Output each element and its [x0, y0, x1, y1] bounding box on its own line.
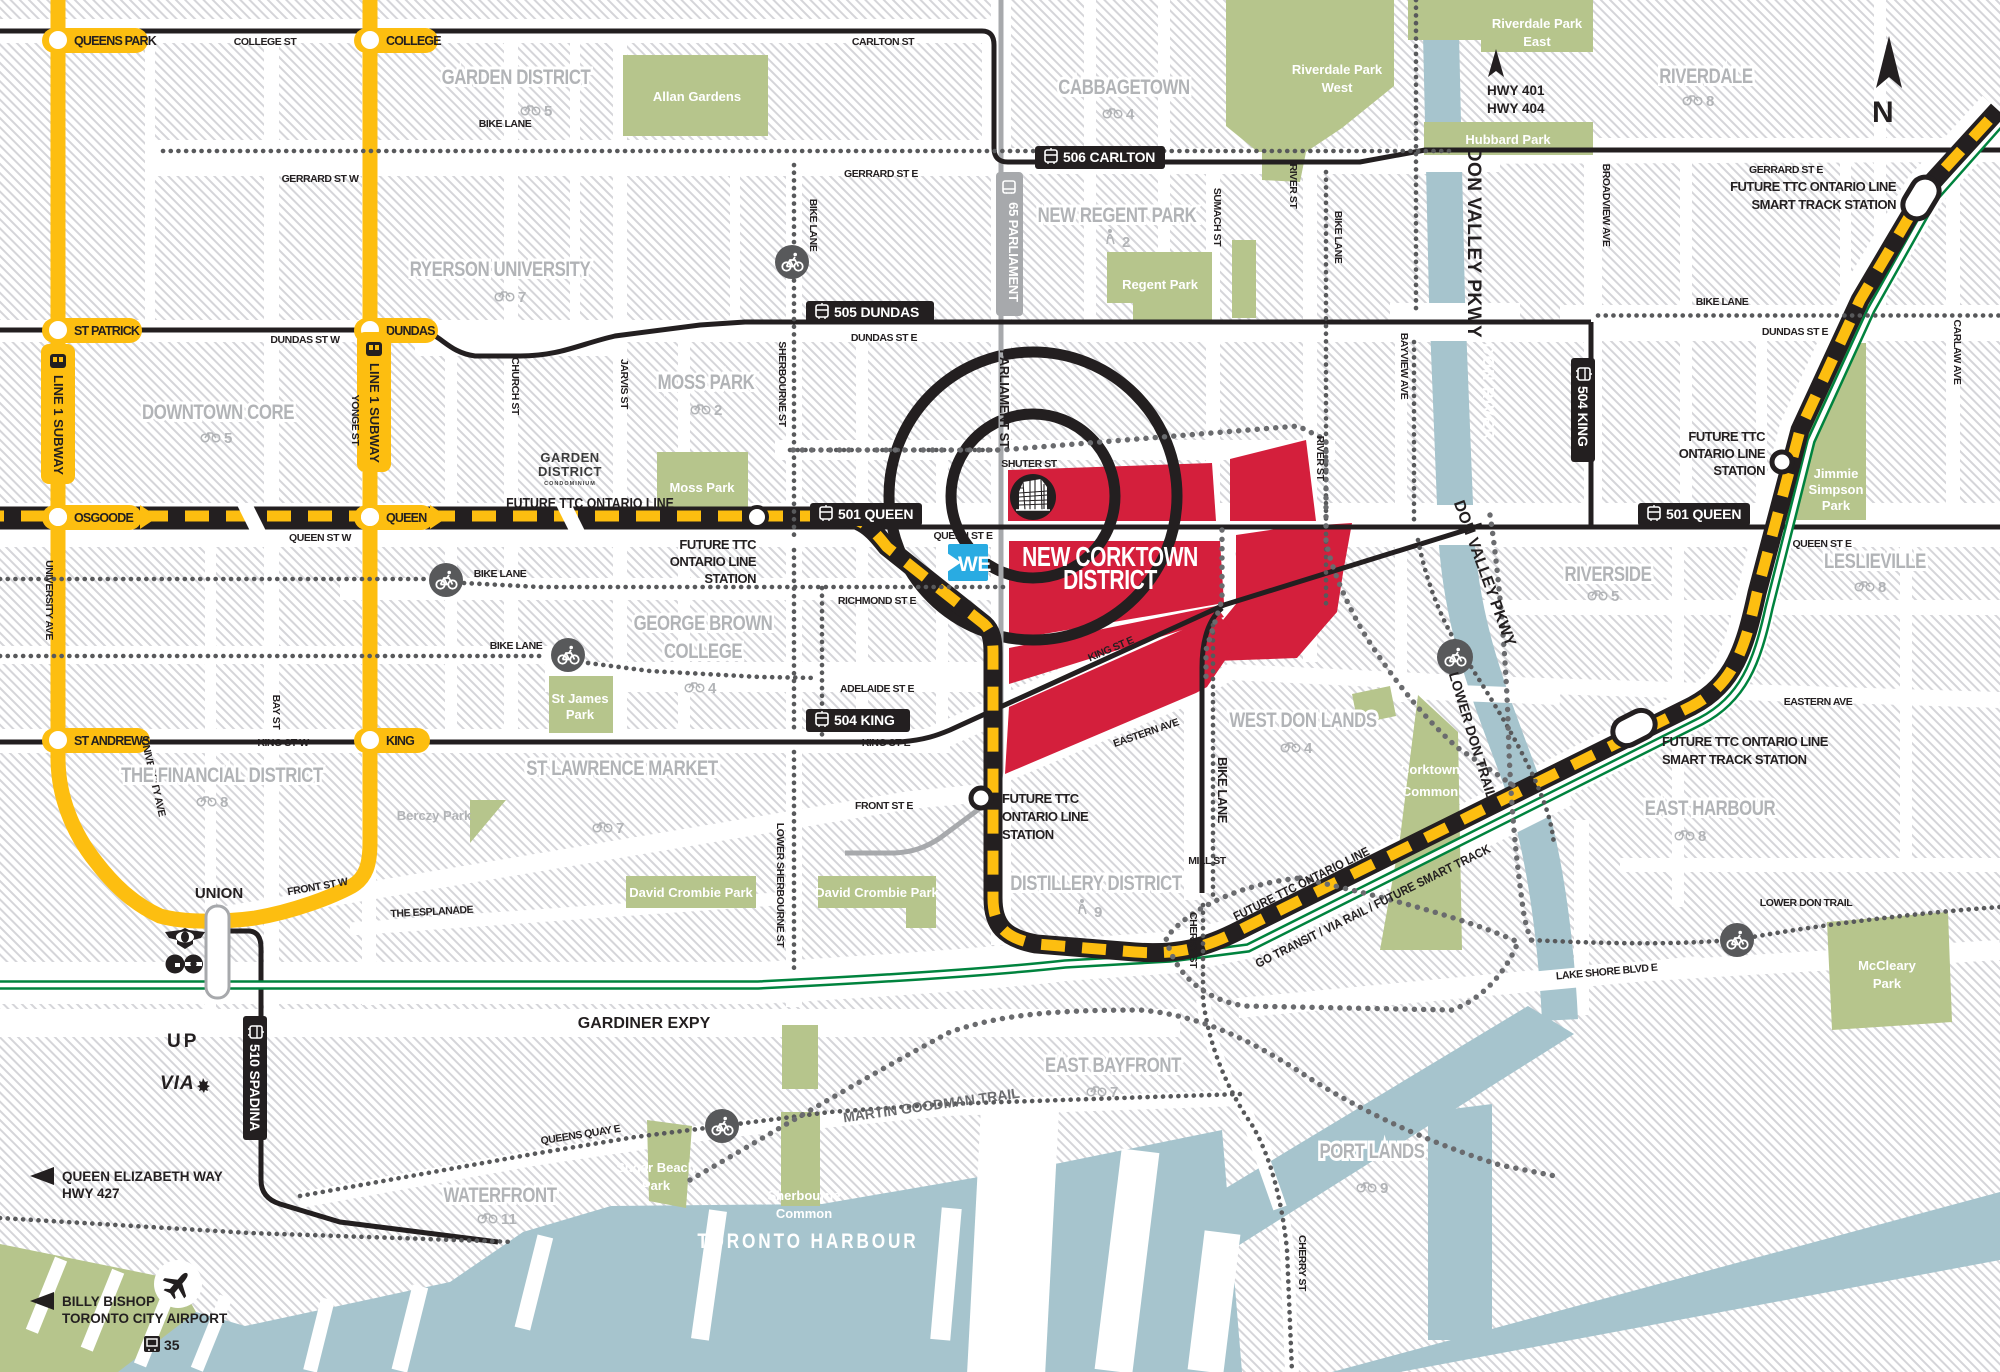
svg-text:CABBAGETOWN: CABBAGETOWN: [1058, 76, 1189, 99]
svg-text:2: 2: [1122, 234, 1130, 251]
svg-text:ONTARIO LINE: ONTARIO LINE: [1679, 446, 1766, 461]
svg-text:8: 8: [1706, 93, 1714, 110]
svg-text:LINE 1 SUBWAY: LINE 1 SUBWAY: [367, 363, 382, 463]
svg-text:LESLIEVILLE: LESLIEVILLE: [1824, 550, 1926, 573]
svg-text:RYERSON UNIVERSITY: RYERSON UNIVERSITY: [410, 258, 591, 281]
svg-text:GEORGE BROWN: GEORGE BROWN: [634, 612, 773, 635]
svg-text:Riverdale Park: Riverdale Park: [1292, 62, 1383, 77]
svg-text:YONGE ST: YONGE ST: [349, 395, 361, 447]
svg-text:RIVERSIDE: RIVERSIDE: [1565, 563, 1652, 586]
svg-text:GERRARD ST W: GERRARD ST W: [282, 173, 359, 185]
svg-text:SMART TRACK STATION: SMART TRACK STATION: [1662, 752, 1807, 767]
svg-text:2: 2: [714, 402, 722, 419]
svg-text:QUEEN ELIZABETH WAY: QUEEN ELIZABETH WAY: [62, 1169, 223, 1184]
svg-text:GARDINER EXPY: GARDINER EXPY: [578, 1015, 711, 1032]
svg-text:HWY 401: HWY 401: [1487, 83, 1545, 98]
svg-text:COLLEGE: COLLEGE: [664, 640, 742, 663]
svg-text:UNION: UNION: [195, 885, 243, 902]
svg-text:SHUTER ST: SHUTER ST: [1001, 458, 1057, 470]
svg-text:QUEEN ST E: QUEEN ST E: [933, 530, 993, 542]
svg-text:COLLEGE ST: COLLEGE ST: [234, 36, 298, 48]
svg-text:LOWER SHERBOURNE ST: LOWER SHERBOURNE ST: [774, 823, 786, 948]
svg-text:EAST HARBOUR: EAST HARBOUR: [1645, 797, 1776, 820]
svg-text:LOWER DON TRAIL: LOWER DON TRAIL: [1760, 897, 1853, 909]
svg-text:504 KING: 504 KING: [1575, 386, 1591, 447]
svg-text:GERRARD ST E: GERRARD ST E: [1749, 164, 1823, 176]
svg-text:ST PATRICK: ST PATRICK: [74, 324, 140, 338]
svg-text:BAYVIEW AVE: BAYVIEW AVE: [1398, 333, 1410, 400]
svg-text:RIVER ST: RIVER ST: [1287, 164, 1299, 210]
svg-text:SHERBOURNE ST: SHERBOURNE ST: [776, 341, 788, 427]
svg-text:QUEENS PARK: QUEENS PARK: [74, 34, 157, 48]
svg-text:BIKE LANE: BIKE LANE: [807, 199, 819, 252]
svg-text:TORONTO HARBOUR: TORONTO HARBOUR: [697, 1231, 918, 1254]
svg-text:QUEEN ST W: QUEEN ST W: [289, 532, 352, 544]
svg-text:TORONTO CITY AIRPORT: TORONTO CITY AIRPORT: [62, 1311, 228, 1326]
svg-text:504 KING: 504 KING: [834, 712, 895, 728]
svg-text:CHURCH ST: CHURCH ST: [509, 357, 521, 416]
svg-text:Park: Park: [642, 1178, 671, 1193]
svg-text:Berczy Park: Berczy Park: [397, 808, 472, 823]
svg-text:7: 7: [616, 820, 624, 837]
svg-text:4: 4: [708, 680, 717, 697]
svg-text:Jimmie: Jimmie: [1814, 466, 1859, 481]
svg-text:HWY 404: HWY 404: [1487, 101, 1545, 116]
svg-text:ADELAIDE ST E: ADELAIDE ST E: [840, 683, 915, 695]
svg-text:KING ST E: KING ST E: [862, 737, 911, 749]
svg-text:QUEEN ST E: QUEEN ST E: [1792, 538, 1852, 550]
svg-text:CHERRY ST: CHERRY ST: [1296, 1235, 1308, 1292]
svg-text:BIKE LANE: BIKE LANE: [490, 640, 543, 652]
svg-text:RIVERDALE: RIVERDALE: [1659, 65, 1752, 88]
svg-text:4: 4: [1304, 740, 1313, 757]
svg-text:8: 8: [1878, 579, 1886, 596]
svg-text:PORT LANDS: PORT LANDS: [1319, 1140, 1424, 1163]
svg-text:BIKE LANE: BIKE LANE: [1696, 296, 1749, 308]
svg-text:JARVIS ST: JARVIS ST: [618, 359, 630, 410]
svg-text:STATION: STATION: [1002, 827, 1054, 842]
svg-text:35: 35: [164, 1337, 180, 1353]
svg-text:9: 9: [1380, 1180, 1388, 1197]
svg-text:505 DUNDAS: 505 DUNDAS: [834, 304, 919, 320]
svg-text:DOWNTOWN CORE: DOWNTOWN CORE: [142, 401, 294, 424]
svg-text:Hubbard Park: Hubbard Park: [1465, 132, 1551, 147]
svg-text:65 PARLIAMENT: 65 PARLIAMENT: [1006, 202, 1021, 302]
svg-text:HWY 427: HWY 427: [62, 1186, 120, 1201]
svg-text:5: 5: [544, 103, 552, 120]
svg-text:FRONT ST E: FRONT ST E: [855, 800, 913, 812]
svg-text:MOSS PARK: MOSS PARK: [658, 371, 755, 394]
svg-text:DUNDAS ST E: DUNDAS ST E: [1762, 326, 1829, 338]
svg-text:MILL ST: MILL ST: [1188, 855, 1227, 867]
svg-text:SMART TRACK STATION: SMART TRACK STATION: [1751, 197, 1896, 212]
svg-text:CONDOMINIUM: CONDOMINIUM: [544, 481, 596, 487]
svg-text:DON RIVER: DON RIVER: [1479, 343, 1496, 441]
svg-text:ST LAWRENCE MARKET: ST LAWRENCE MARKET: [526, 757, 718, 780]
svg-text:ONTARIO LINE: ONTARIO LINE: [670, 554, 757, 569]
svg-text:5: 5: [1611, 588, 1619, 605]
svg-text:DISTRICT: DISTRICT: [1063, 565, 1157, 596]
svg-text:FUTURE TTC: FUTURE TTC: [1688, 429, 1766, 444]
svg-text:Regent Park: Regent Park: [1122, 277, 1199, 292]
svg-text:FUTURE TTC ONTARIO LINE: FUTURE TTC ONTARIO LINE: [1662, 734, 1829, 749]
svg-text:ONTARIO LINE: ONTARIO LINE: [1002, 809, 1089, 824]
svg-text:7: 7: [1110, 1084, 1118, 1101]
svg-text:McCleary: McCleary: [1858, 958, 1917, 973]
svg-text:CARLTON ST: CARLTON ST: [852, 36, 915, 48]
svg-text:Riverdale Park: Riverdale Park: [1492, 16, 1583, 31]
svg-text:FUTURE TTC ONTARIO LINE: FUTURE TTC ONTARIO LINE: [1730, 179, 1897, 194]
svg-text:5: 5: [224, 430, 232, 447]
svg-text:DISTILLERY DISTRICT: DISTILLERY DISTRICT: [1010, 872, 1182, 895]
svg-text:DON VALLEY PKWY: DON VALLEY PKWY: [1463, 148, 1484, 338]
svg-text:Allan Gardens: Allan Gardens: [653, 89, 741, 104]
svg-text:David Crombie Park: David Crombie Park: [629, 885, 753, 900]
svg-text:NEW REGENT PARK: NEW REGENT PARK: [1038, 204, 1197, 227]
svg-text:Common: Common: [776, 1206, 832, 1221]
svg-text:Corktown: Corktown: [1400, 762, 1460, 777]
svg-text:501 QUEEN: 501 QUEEN: [1666, 506, 1741, 522]
svg-text:GERRARD ST E: GERRARD ST E: [844, 168, 918, 180]
svg-text:BILLY BISHOP: BILLY BISHOP: [62, 1294, 155, 1309]
svg-text:BROADVIEW AVE: BROADVIEW AVE: [1600, 164, 1612, 247]
svg-text:St James: St James: [551, 691, 608, 706]
svg-text:LINE 1 SUBWAY: LINE 1 SUBWAY: [51, 375, 66, 475]
svg-text:DUNDAS ST E: DUNDAS ST E: [851, 332, 918, 344]
svg-text:FUTURE TTC ONTARIO LINE: FUTURE TTC ONTARIO LINE: [506, 495, 674, 511]
svg-text:EAST BAYFRONT: EAST BAYFRONT: [1045, 1054, 1182, 1077]
svg-text:West: West: [1322, 80, 1353, 95]
svg-text:Sherbourne: Sherbourne: [768, 1188, 841, 1203]
svg-text:PARLIAMENT ST: PARLIAMENT ST: [997, 350, 1012, 449]
svg-text:Simpson: Simpson: [1809, 482, 1864, 497]
svg-text:BIKE LANE: BIKE LANE: [474, 568, 527, 580]
svg-text:WEST DON LANDS: WEST DON LANDS: [1229, 709, 1376, 732]
svg-text:BIKE LANE: BIKE LANE: [479, 118, 532, 130]
svg-text:THE FINANCIAL DISTRICT: THE FINANCIAL DISTRICT: [121, 764, 323, 787]
svg-text:Sugar Beach: Sugar Beach: [616, 1160, 696, 1175]
svg-text:510 SPADINA: 510 SPADINA: [247, 1044, 263, 1131]
svg-text:11: 11: [501, 1211, 517, 1228]
svg-text:RICHMOND ST E: RICHMOND ST E: [838, 595, 917, 607]
svg-text:DUNDAS ST W: DUNDAS ST W: [270, 334, 340, 346]
svg-text:QUEEN: QUEEN: [386, 511, 427, 525]
svg-text:KING: KING: [386, 734, 414, 748]
svg-text:SUMACH ST: SUMACH ST: [1211, 188, 1223, 247]
svg-text:BAY ST: BAY ST: [270, 695, 282, 731]
svg-text:David Crombie Park: David Crombie Park: [815, 885, 939, 900]
svg-text:FUTURE TTC: FUTURE TTC: [679, 537, 757, 552]
svg-text:DISTRICT: DISTRICT: [538, 464, 602, 479]
svg-text:Park: Park: [566, 707, 595, 722]
svg-text:WE: WE: [958, 553, 991, 576]
svg-text:501 QUEEN: 501 QUEEN: [838, 506, 913, 522]
svg-text:BIKE LANE: BIKE LANE: [1332, 211, 1344, 264]
svg-text:OSGOODE: OSGOODE: [74, 511, 133, 525]
svg-text:UNIVERSITY AVE: UNIVERSITY AVE: [43, 560, 55, 640]
svg-text:CARLAW AVE: CARLAW AVE: [1951, 320, 1963, 385]
svg-text:DUNDAS: DUNDAS: [386, 324, 435, 338]
svg-text:STATION: STATION: [1713, 463, 1765, 478]
svg-text:4: 4: [1126, 106, 1135, 123]
svg-text:STATION: STATION: [704, 571, 756, 586]
svg-text:8: 8: [220, 794, 228, 811]
svg-text:Park: Park: [1822, 498, 1851, 513]
svg-text:Park: Park: [1873, 976, 1902, 991]
svg-text:BIKE LANE: BIKE LANE: [1215, 757, 1230, 824]
svg-text:9: 9: [1094, 904, 1102, 921]
svg-text:N: N: [1872, 96, 1894, 129]
svg-text:8: 8: [1698, 828, 1706, 845]
svg-text:UP: UP: [167, 1031, 199, 1052]
svg-text:506 CARLTON: 506 CARLTON: [1063, 149, 1155, 165]
svg-text:COLLEGE: COLLEGE: [386, 34, 441, 48]
svg-text:KING ST W: KING ST W: [257, 737, 309, 749]
svg-text:FUTURE TTC: FUTURE TTC: [1002, 791, 1080, 806]
svg-text:Moss Park: Moss Park: [669, 480, 735, 495]
svg-text:7: 7: [518, 289, 526, 306]
svg-text:East: East: [1523, 34, 1551, 49]
svg-text:GARDEN DISTRICT: GARDEN DISTRICT: [442, 66, 592, 89]
svg-text:RIVER ST: RIVER ST: [1314, 436, 1326, 482]
svg-text:Common: Common: [1402, 784, 1458, 799]
svg-text:VIA: VIA: [160, 1073, 195, 1094]
svg-text:WATERFRONT: WATERFRONT: [443, 1184, 557, 1207]
svg-text:EASTERN AVE: EASTERN AVE: [1784, 696, 1853, 708]
svg-text:GARDEN: GARDEN: [540, 450, 599, 465]
svg-text:CHERRY ST: CHERRY ST: [1187, 912, 1199, 969]
